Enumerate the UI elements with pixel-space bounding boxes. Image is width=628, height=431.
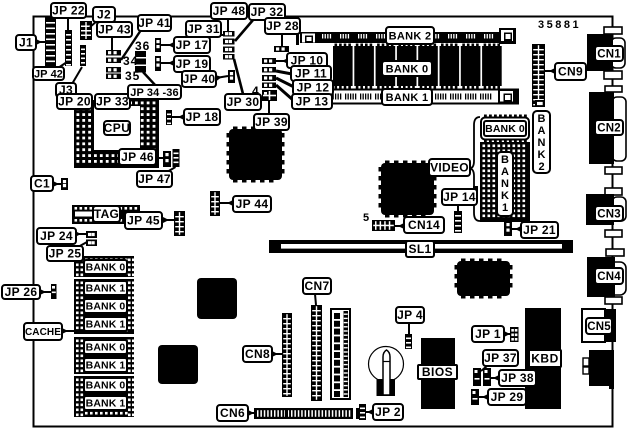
svg-text:BIOS: BIOS [422,365,453,379]
svg-text:JP 25: JP 25 [49,247,82,261]
svg-text:2: 2 [538,161,544,173]
svg-text:JP 38: JP 38 [501,371,534,385]
svg-text:34: 34 [123,54,138,68]
svg-text:JP 44: JP 44 [236,197,269,211]
svg-text:BANK 0: BANK 0 [485,123,525,135]
svg-text:JP 40: JP 40 [183,72,216,86]
svg-text:VIDEO: VIDEO [430,161,469,175]
svg-text:K: K [501,190,509,202]
svg-text:BANK 0: BANK 0 [86,380,126,392]
svg-text:N: N [538,137,546,149]
svg-text:N: N [501,178,509,190]
svg-text:B: B [501,154,509,166]
svg-text:JP 31: JP 31 [187,22,220,36]
svg-text:BANK 1: BANK 1 [86,283,126,295]
svg-text:JP 20: JP 20 [58,95,91,109]
svg-text:JP 11: JP 11 [295,67,327,81]
svg-text:JP 34 -36: JP 34 -36 [130,87,178,99]
svg-text:J1: J1 [19,36,33,50]
svg-text:5: 5 [363,212,369,224]
svg-text:JP 14: JP 14 [443,190,476,204]
svg-text:CN7: CN7 [305,279,330,293]
svg-text:JP 47: JP 47 [138,172,171,186]
svg-text:TAG: TAG [94,207,119,221]
svg-text:BANK 2: BANK 2 [389,30,432,42]
svg-text:JP 17: JP 17 [176,38,209,52]
svg-text:35881: 35881 [538,19,581,31]
svg-text:A: A [501,166,509,178]
svg-text:CN8: CN8 [245,347,270,361]
svg-text:JP 21: JP 21 [523,223,556,237]
svg-text:JP 2: JP 2 [375,405,401,419]
svg-text:SL1: SL1 [409,242,432,256]
svg-text:JP 12: JP 12 [297,81,330,95]
svg-text:BANK 1: BANK 1 [86,319,126,331]
svg-text:35: 35 [125,69,140,83]
svg-text:BANK 1: BANK 1 [86,398,126,410]
svg-text:JP 42: JP 42 [34,68,63,80]
svg-text:JP 45: JP 45 [127,214,160,228]
svg-text:CN14: CN14 [408,218,440,232]
svg-text:CACHE: CACHE [25,327,61,338]
svg-text:1: 1 [502,202,508,214]
svg-text:J2: J2 [97,8,111,22]
svg-text:CPU: CPU [104,121,131,135]
svg-text:JP 4: JP 4 [397,308,423,322]
svg-text:JP 39: JP 39 [255,115,288,129]
svg-text:CN4: CN4 [597,271,621,283]
svg-text:JP 43: JP 43 [98,23,131,37]
svg-text:BANK 0: BANK 0 [386,63,429,75]
svg-text:36: 36 [135,39,150,53]
svg-text:CN3: CN3 [597,209,621,221]
svg-text:JP 22: JP 22 [52,4,85,18]
svg-text:JP 19: JP 19 [176,57,209,71]
svg-text:JP 46: JP 46 [121,150,154,164]
svg-text:JP 28: JP 28 [266,19,299,33]
svg-text:B: B [538,113,546,125]
svg-text:JP 37: JP 37 [484,351,517,365]
svg-text:JP 41: JP 41 [138,16,171,30]
svg-text:BANK 0: BANK 0 [86,301,126,313]
svg-text:CN6: CN6 [220,406,245,420]
svg-text:JP 1: JP 1 [475,327,501,341]
svg-text:A: A [538,125,546,137]
svg-text:JP 18: JP 18 [186,110,219,124]
svg-text:CN5: CN5 [587,321,611,333]
svg-text:BANK 0: BANK 0 [86,262,126,274]
svg-text:JP 26: JP 26 [5,285,38,299]
svg-text:BANK 1: BANK 1 [86,360,126,372]
svg-text:BANK 0: BANK 0 [86,342,126,354]
svg-text:BANK 1: BANK 1 [386,92,429,104]
svg-text:K: K [538,149,546,161]
svg-text:JP 24: JP 24 [40,229,73,243]
svg-text:C1: C1 [34,177,50,191]
svg-text:KBD: KBD [531,352,559,366]
svg-text:CN1: CN1 [597,49,621,61]
svg-text:CN9: CN9 [558,65,583,79]
svg-text:JP 30: JP 30 [227,95,260,109]
svg-text:JP 13: JP 13 [296,95,329,109]
svg-text:JP 48: JP 48 [213,4,246,18]
svg-text:JP 33: JP 33 [96,95,129,109]
svg-text:CN2: CN2 [597,123,621,135]
svg-text:JP 29: JP 29 [491,390,524,404]
